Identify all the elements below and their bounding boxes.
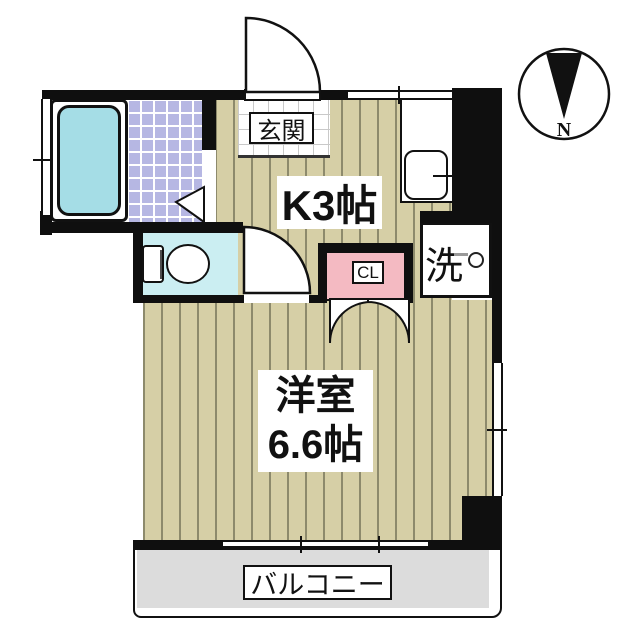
wall <box>452 88 502 222</box>
compass-circle <box>519 49 609 139</box>
laundry-label: 洗 <box>422 240 466 284</box>
wall <box>320 90 348 100</box>
entrance-label: 玄関 <box>249 112 314 144</box>
balcony-label: バルコニー <box>243 565 392 600</box>
wall <box>133 225 143 303</box>
kitchen-label: K3帖 <box>277 176 382 229</box>
entrance-label-text: 玄関 <box>258 111 306 146</box>
wall <box>309 295 318 303</box>
window-balcony <box>223 540 428 548</box>
wall <box>492 222 502 363</box>
compass-needle <box>546 53 582 119</box>
wall <box>420 211 492 223</box>
window-east <box>492 363 503 496</box>
western-room-label: 洋室 6.6帖 <box>258 370 373 472</box>
window-bathroom <box>41 99 52 215</box>
wall <box>133 295 244 303</box>
laundry-label-text: 洗 <box>425 235 463 290</box>
closet-wall <box>404 243 413 303</box>
kitchen-label-text: K3帖 <box>282 172 378 233</box>
wall <box>202 90 216 150</box>
room-door-opening <box>244 293 309 303</box>
kitchen-counter <box>400 100 452 203</box>
floor-plan: 玄関 K3帖 CL 洗 洋室 6.6帖 バルコニー <box>0 0 640 640</box>
western-room-size: 6.6帖 <box>268 421 364 470</box>
closet-wall <box>318 243 327 303</box>
western-room-name: 洋室 <box>276 372 356 421</box>
closet-label-text: CL <box>357 263 379 283</box>
closet-label: CL <box>352 261 384 284</box>
window-kitchen <box>348 90 452 100</box>
laundry-tap-circle <box>468 252 484 268</box>
wall <box>133 225 243 233</box>
bathtub <box>57 105 121 216</box>
wall <box>428 540 462 550</box>
entrance-door-swing <box>246 18 320 92</box>
wall <box>462 496 502 550</box>
closet-wall <box>318 243 413 253</box>
toilet-room-floor <box>142 233 238 295</box>
balcony-label-text: バルコニー <box>250 563 384 602</box>
bathroom-tile-floor <box>127 99 202 222</box>
wall <box>133 540 223 550</box>
bathroom-door-opening <box>202 150 216 222</box>
laundry-tap-dash <box>454 253 468 256</box>
entrance-threshold <box>244 89 321 101</box>
compass-north-label: N <box>557 119 572 141</box>
